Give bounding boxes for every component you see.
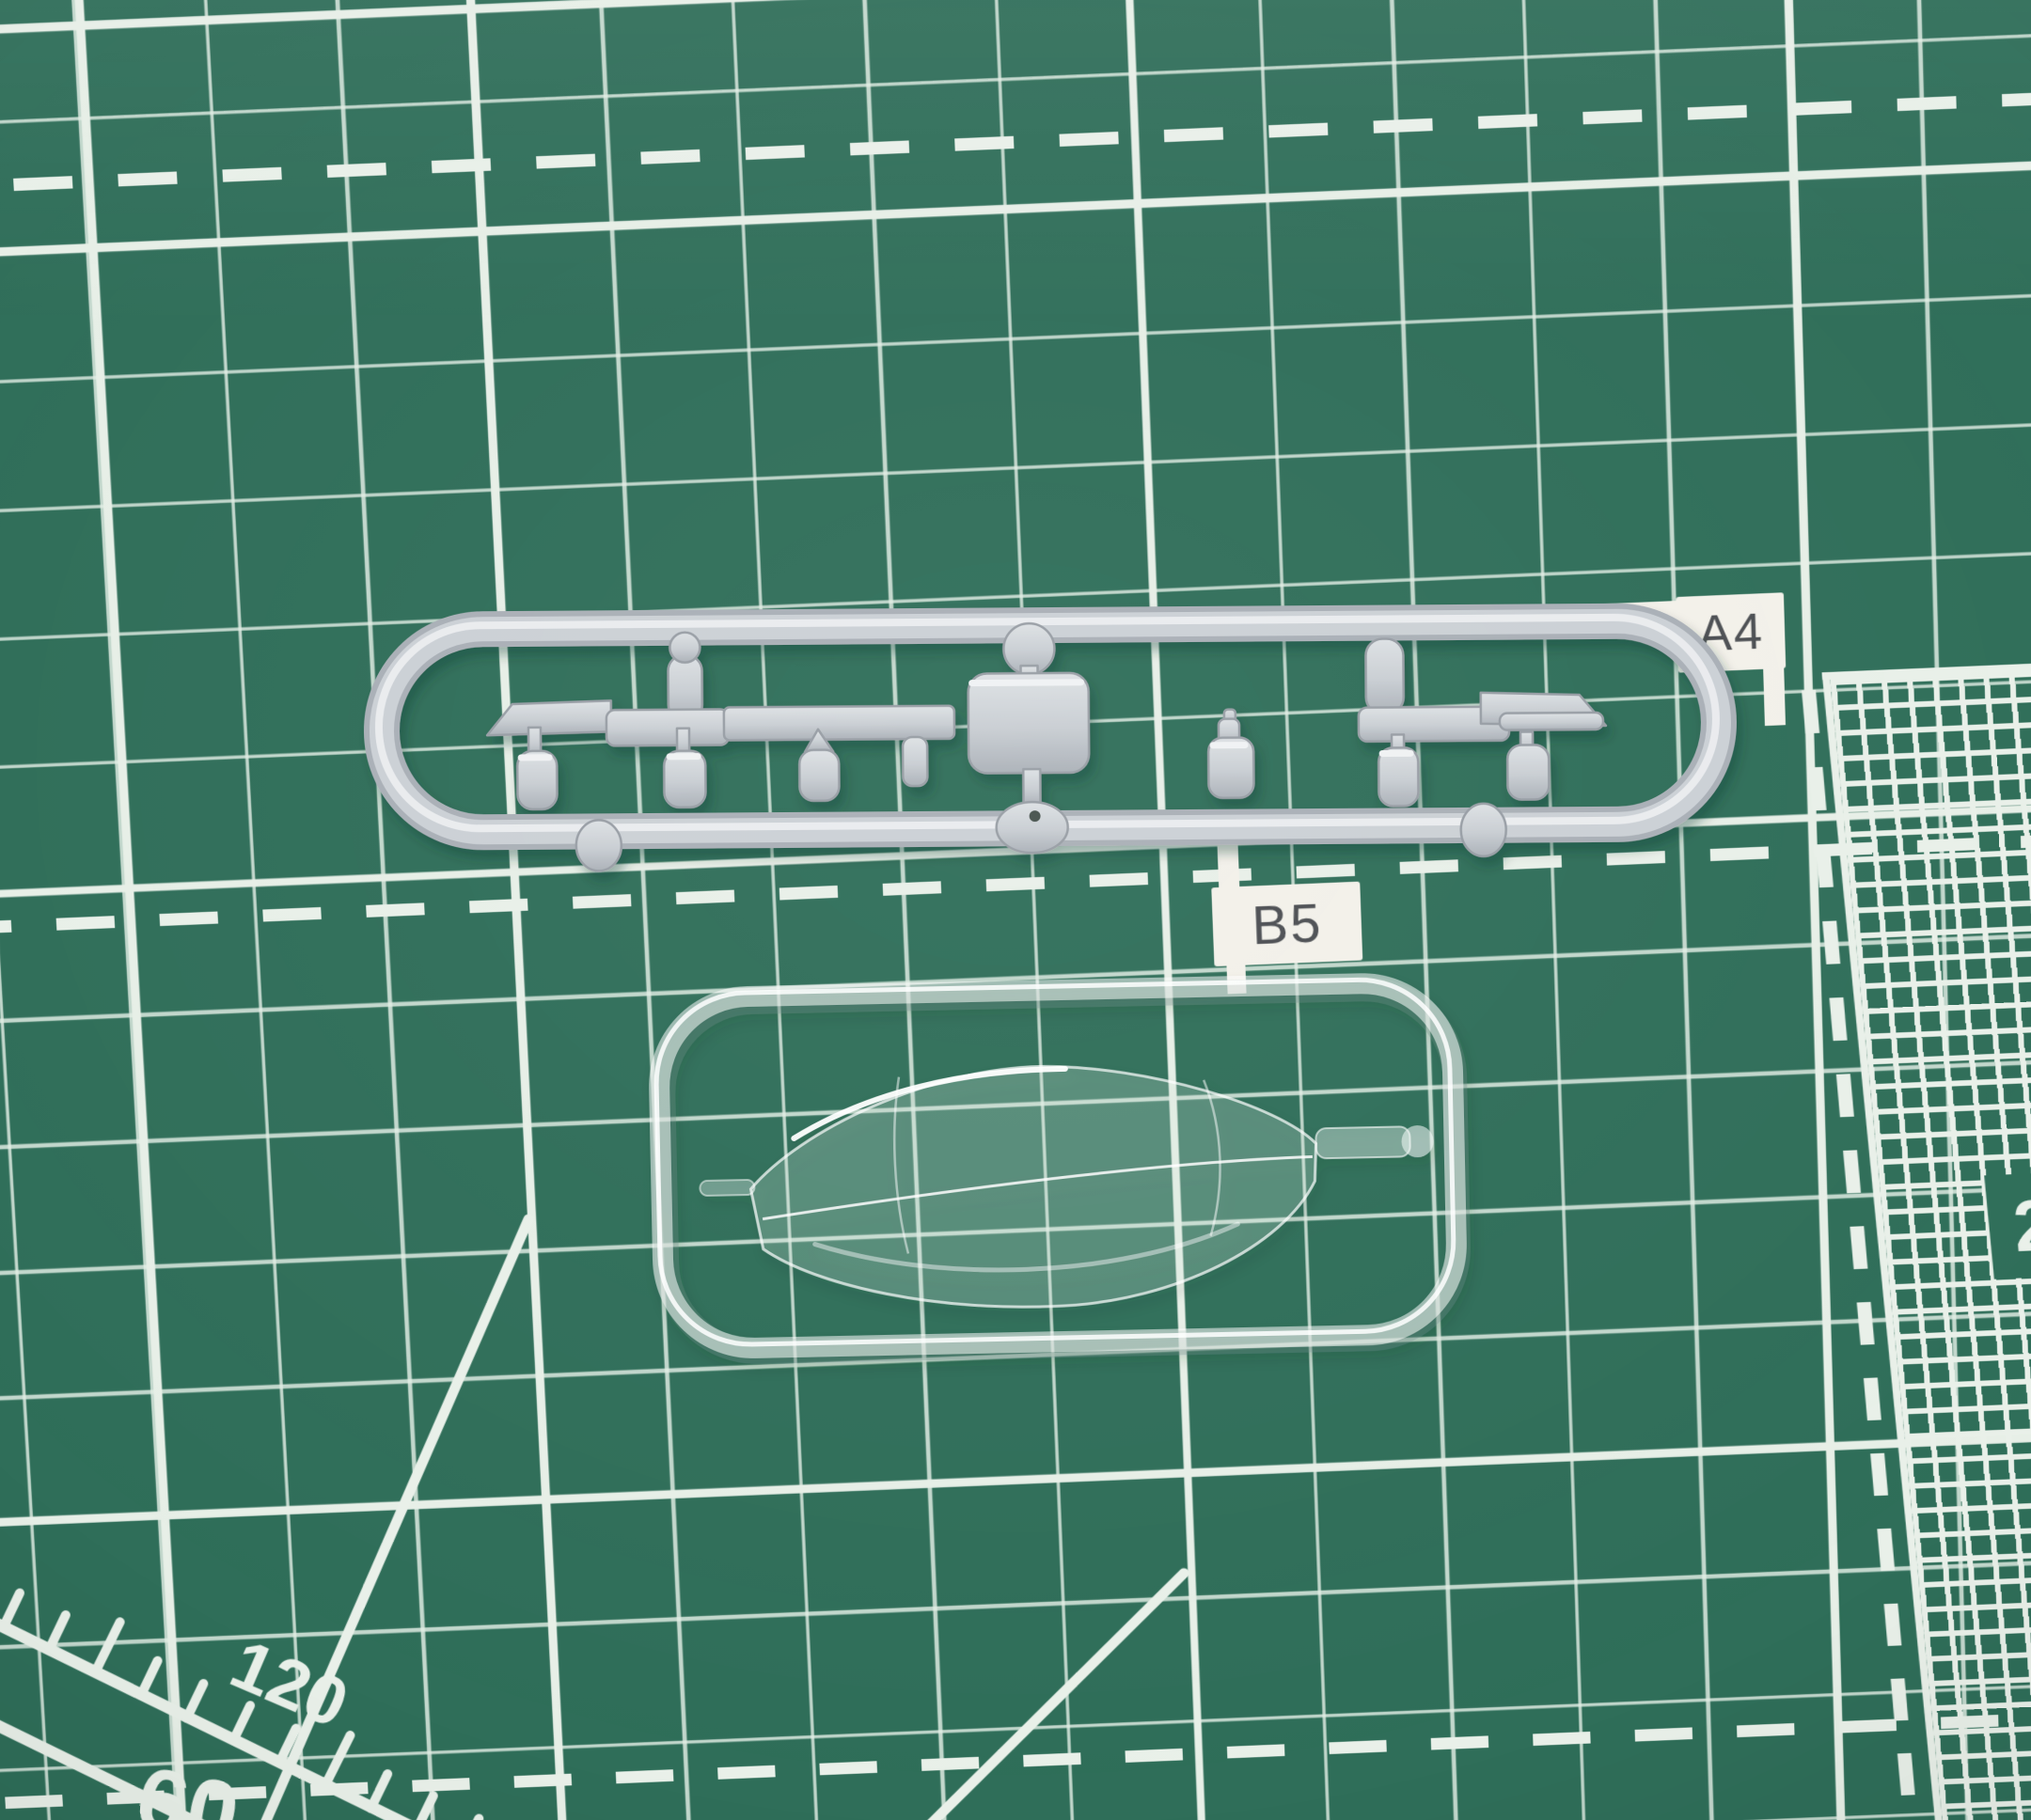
missile-left bbox=[487, 700, 611, 735]
canopy-part bbox=[748, 1060, 1319, 1312]
missile-left-pylon bbox=[724, 706, 954, 741]
gate-cylinder-right bbox=[1365, 638, 1404, 714]
bomb-5 bbox=[1507, 745, 1549, 799]
square-plate-part bbox=[968, 673, 1090, 774]
angle-ray-45deg bbox=[840, 1574, 1197, 1820]
gate-nub-bottom-left bbox=[576, 820, 622, 871]
missile-left-body bbox=[606, 709, 729, 745]
gate-knob-left bbox=[669, 633, 700, 663]
canopy-left-stub bbox=[700, 1180, 754, 1196]
clear-sprue-runner bbox=[621, 940, 1504, 1391]
plate-gate-bottom bbox=[1023, 769, 1040, 805]
missile-left-gate bbox=[903, 737, 927, 786]
runner-bump-bottom-centre bbox=[997, 802, 1068, 854]
photo-scene: 2 120 60 A4 B5 bbox=[0, 0, 2031, 1820]
bomb-3 bbox=[799, 750, 839, 801]
canopy-gate-bar bbox=[1315, 1126, 1410, 1158]
missile-right-spike bbox=[1500, 713, 1603, 730]
grey-sprue-runner bbox=[320, 555, 1787, 912]
plate-ejector-hole bbox=[1030, 810, 1041, 822]
gate-nub-bottom-right bbox=[1461, 804, 1506, 856]
